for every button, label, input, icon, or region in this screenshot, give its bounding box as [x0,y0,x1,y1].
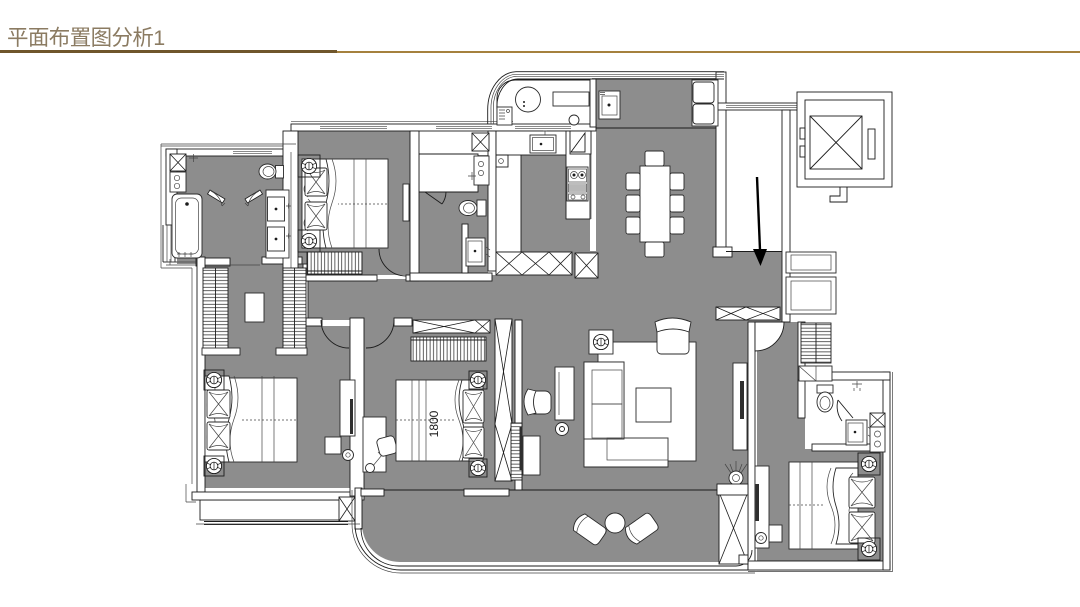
svg-text:1800: 1800 [427,410,441,437]
